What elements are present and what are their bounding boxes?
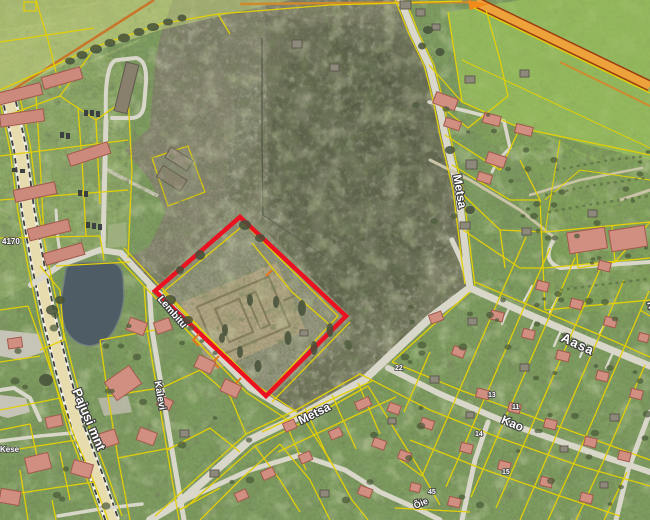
svg-text:14: 14 [475, 431, 483, 438]
svg-text:22: 22 [395, 365, 403, 372]
svg-text:45: 45 [428, 489, 436, 496]
svg-text:4170: 4170 [2, 237, 20, 246]
svg-text:Kese: Kese [0, 445, 20, 454]
svg-text:11: 11 [512, 404, 520, 411]
svg-text:15: 15 [502, 469, 510, 476]
svg-text:13: 13 [488, 392, 496, 399]
